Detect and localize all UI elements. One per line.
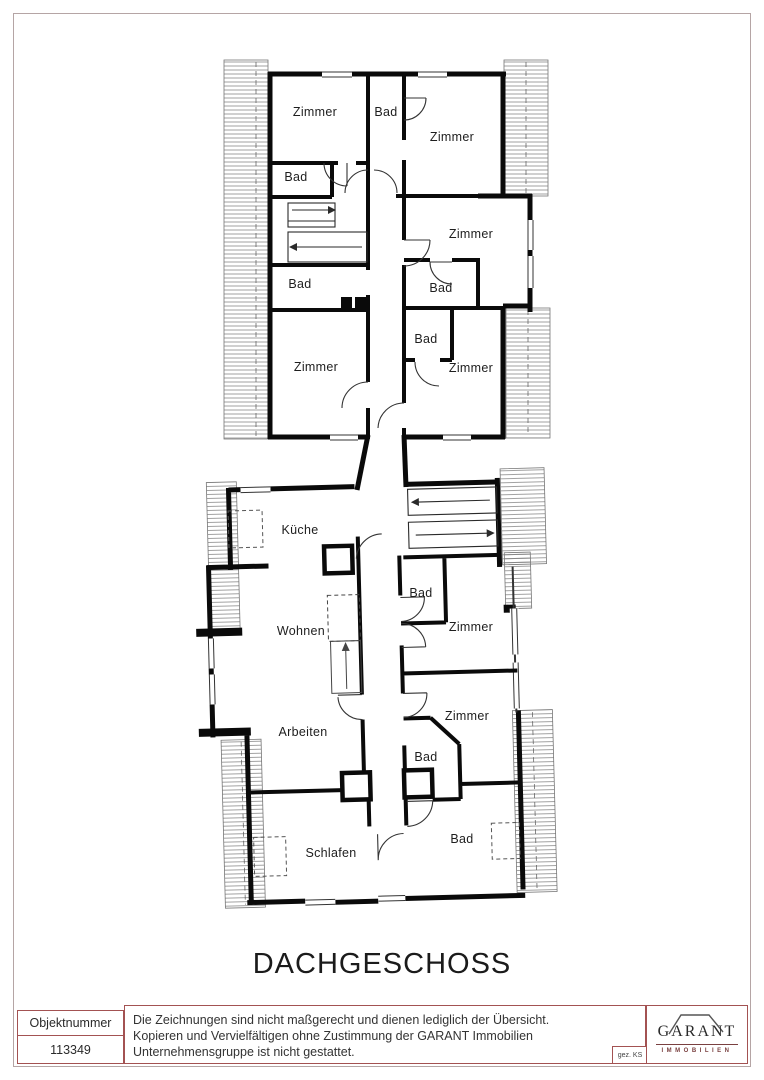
floorplan-document-page: Zimmer Bad Zimmer Bad Zimmer Bad Bad Bad… [0,0,764,1080]
stairs-direction-arrow [346,649,347,689]
room-label-zimmer-low-left: Zimmer [294,360,338,374]
roof-hatch-strips-lower [206,468,557,909]
room-label-wohnen: Wohnen [277,624,325,638]
disclaimer-line-1: Die Zeichnungen sind nicht maßgerecht un… [133,1012,637,1028]
room-label-bad-center: Bad [414,332,437,346]
room-label-bad-south-east: Bad [450,832,473,846]
stairs-lower [408,487,499,548]
lower-apartment-plan [192,468,557,909]
floor-plan-drawing [0,0,764,1080]
door-arcs-lower [334,533,435,861]
connecting-corridor [357,435,406,490]
object-number-label: Objektnummer [18,1011,123,1036]
chimney-shaft [342,772,371,800]
disclaimer-line-3: Unternehmensgruppe ist nicht gestattet. [133,1044,637,1060]
object-number-box: Objektnummer 113349 [17,1010,124,1064]
room-label-kueche: Küche [282,523,319,537]
room-label-bad-mid-left: Bad [288,277,311,291]
inner-walls-lower [240,533,521,830]
stairs-direction-arrow [418,500,490,502]
room-label-bad-mid-right: Bad [429,281,452,295]
page-title: DACHGESCHOSS [253,948,512,981]
disclaimer-box: Die Zeichnungen sind nicht maßgerecht un… [124,1005,646,1064]
inner-walls-upper [270,74,503,439]
room-label-zimmer-mid-right: Zimmer [449,227,493,241]
stairs-direction-arrow [416,533,488,535]
outer-walls-upper [268,72,532,439]
object-number-value: 113349 [18,1036,123,1064]
chimney-shaft [324,546,353,574]
logo-wordmark: GARANT [647,1023,747,1041]
room-label-zimmer-east-up: Zimmer [449,620,493,634]
garant-logo: GARANT IMMOBILIEN [647,1006,747,1063]
room-label-schlafen: Schlafen [305,846,356,860]
room-label-arbeiten: Arbeiten [279,725,328,739]
dashed-fixtures [228,504,520,877]
logo-divider-line [656,1044,738,1045]
room-label-zimmer-top-right: Zimmer [430,130,474,144]
chimney-shaft [404,770,433,798]
loft-ladder [327,595,362,694]
sink-fixture [355,297,366,309]
logo-subtitle: IMMOBILIEN [647,1048,747,1054]
room-label-bad-top-middle: Bad [374,105,397,119]
room-label-bad-upper-left: Bad [284,170,307,184]
room-label-bad-hall: Bad [409,586,432,600]
signed-by-label: gez. KS [618,1052,643,1059]
room-label-zimmer-top-left: Zimmer [293,105,337,119]
stairs-upper [288,203,367,262]
room-label-bad-south-center: Bad [414,750,437,764]
company-logo-box: GARANT IMMOBILIEN [646,1005,748,1064]
room-label-zimmer-east-low: Zimmer [445,709,489,723]
disclaimer-line-2: Kopieren und Vervielfältigen ohne Zustim… [133,1028,637,1044]
sink-fixture [341,297,352,309]
signed-by-box: gez. KS [612,1046,648,1064]
room-label-zimmer-low-right: Zimmer [449,361,493,375]
